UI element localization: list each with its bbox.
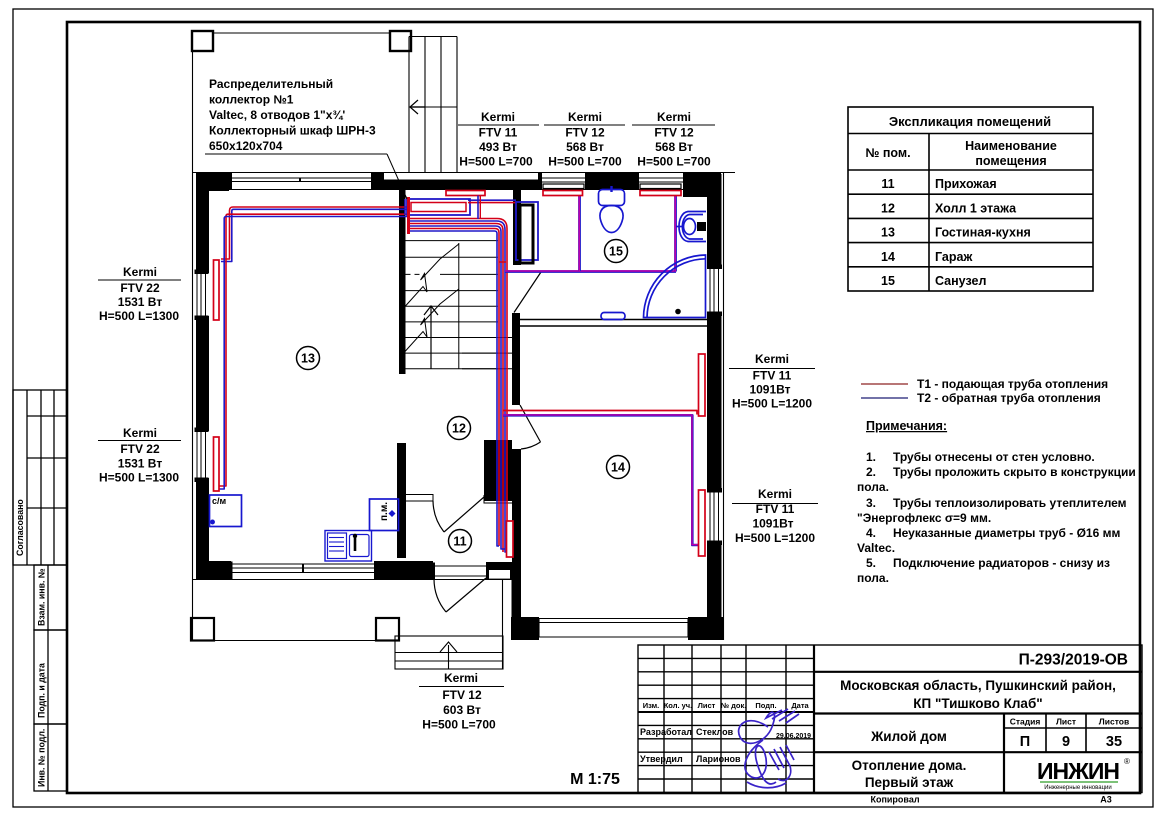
- svg-text:Взам. инв. №: Взам. инв. №: [37, 568, 47, 626]
- svg-text:1091Вт: 1091Вт: [752, 517, 793, 531]
- svg-text:15: 15: [881, 274, 895, 288]
- svg-text:FTV 12: FTV 12: [442, 688, 482, 702]
- svg-text:Наименование: Наименование: [965, 139, 1057, 153]
- svg-text:1531 Вт: 1531 Вт: [118, 457, 163, 471]
- svg-text:14: 14: [611, 461, 625, 475]
- svg-text:H=500 L=700: H=500 L=700: [637, 155, 711, 169]
- svg-text:"Энергофлекс σ=9 мм.: "Энергофлекс σ=9 мм.: [857, 511, 991, 525]
- svg-text:Т1 - подающая труба отопления: Т1 - подающая труба отопления: [917, 377, 1108, 391]
- svg-text:Трубы отнесены от стен условно: Трубы отнесены от стен условно.: [893, 450, 1095, 464]
- svg-text:Дата: Дата: [791, 701, 809, 710]
- svg-text:Стадия: Стадия: [1010, 717, 1041, 727]
- svg-text:603 Вт: 603 Вт: [443, 703, 481, 717]
- svg-text:H=500 L=1200: H=500 L=1200: [735, 531, 815, 545]
- svg-text:FTV 22: FTV 22: [120, 442, 160, 456]
- svg-text:Инженерные инновации: Инженерные инновации: [1044, 785, 1112, 791]
- svg-text:Первый этаж: Первый этаж: [865, 775, 954, 790]
- svg-text:Изм.: Изм.: [643, 701, 660, 710]
- svg-text:Утвердил: Утвердил: [640, 754, 683, 764]
- svg-text:1531 Вт: 1531 Вт: [118, 295, 163, 309]
- svg-text:H=500 L=1200: H=500 L=1200: [732, 397, 812, 411]
- svg-text:Примечания:: Примечания:: [866, 419, 947, 433]
- svg-text:14: 14: [881, 250, 895, 264]
- svg-text:11: 11: [881, 177, 894, 191]
- svg-text:Kermi: Kermi: [755, 352, 789, 366]
- svg-text:П-293/2019-ОВ: П-293/2019-ОВ: [1019, 652, 1128, 669]
- svg-text:13: 13: [301, 352, 315, 366]
- svg-text:Кол. уч.: Кол. уч.: [664, 701, 693, 710]
- svg-text:Kermi: Kermi: [758, 487, 792, 501]
- svg-text:Трубы теплоизолировать утеплит: Трубы теплоизолировать утеплителем: [893, 496, 1127, 510]
- svg-text:Отопление дома.: Отопление дома.: [852, 758, 967, 773]
- svg-text:12: 12: [881, 201, 895, 215]
- svg-text:Подп.: Подп.: [755, 701, 776, 710]
- svg-text:с/м: с/м: [212, 496, 227, 506]
- svg-text:FTV 11: FTV 11: [753, 369, 792, 383]
- svg-text:Листов: Листов: [1099, 717, 1129, 727]
- svg-text:№ док.: № док.: [721, 701, 747, 710]
- svg-text:35: 35: [1106, 734, 1122, 750]
- svg-text:Московская область, Пушкинский: Московская область, Пушкинский район,: [840, 678, 1116, 693]
- svg-text:пола.: пола.: [857, 571, 889, 585]
- svg-text:650х120х704: 650х120х704: [209, 139, 283, 153]
- svg-text:Т2 - обратная труба отопления: Т2 - обратная труба отопления: [917, 391, 1101, 405]
- svg-text:H=500 L=700: H=500 L=700: [548, 155, 622, 169]
- svg-text:FTV 12: FTV 12: [654, 126, 694, 140]
- svg-text:коллектор №1: коллектор №1: [209, 93, 294, 107]
- svg-text:Kermi: Kermi: [481, 110, 515, 124]
- svg-text:Ларионов: Ларионов: [696, 754, 741, 764]
- svg-text:1091Вт: 1091Вт: [749, 383, 790, 397]
- svg-text:5.: 5.: [866, 556, 876, 570]
- svg-text:Холл 1 этажа: Холл 1 этажа: [935, 201, 1017, 215]
- svg-text:4.: 4.: [866, 526, 876, 540]
- svg-text:Лист: Лист: [698, 701, 716, 710]
- svg-text:п.м.: п.м.: [379, 502, 390, 521]
- svg-text:Гараж: Гараж: [935, 250, 972, 264]
- svg-text:15: 15: [609, 245, 623, 259]
- svg-text:ИНЖИН: ИНЖИН: [1037, 758, 1119, 784]
- svg-text:Трубы проложить скрыто в конст: Трубы проложить скрыто в конструкции: [893, 465, 1136, 479]
- svg-text:М 1:75: М 1:75: [570, 771, 620, 788]
- svg-text:H=500 L=1300: H=500 L=1300: [99, 471, 179, 485]
- svg-text:Инв. № подл.: Инв. № подл.: [37, 729, 47, 787]
- svg-text:Санузел: Санузел: [935, 274, 986, 288]
- svg-text:H=500 L=700: H=500 L=700: [459, 155, 533, 169]
- svg-text:Kermi: Kermi: [123, 265, 157, 279]
- svg-text:Разработал: Разработал: [640, 727, 692, 737]
- svg-text:13: 13: [881, 226, 895, 240]
- svg-text:568 Вт: 568 Вт: [566, 140, 604, 154]
- svg-text:2.: 2.: [866, 465, 876, 479]
- svg-text:®: ®: [1124, 757, 1130, 766]
- svg-text:11: 11: [453, 535, 466, 549]
- svg-text:Kermi: Kermi: [123, 426, 157, 440]
- svg-text:Прихожая: Прихожая: [935, 177, 997, 191]
- svg-text:Valtec, 8 отводов 1"х¾': Valtec, 8 отводов 1"х¾': [209, 108, 345, 122]
- svg-text:А3: А3: [1100, 795, 1112, 805]
- svg-text:КП "Тишково Клаб": КП "Тишково Клаб": [913, 696, 1042, 711]
- svg-text:Неуказанные диаметры труб - Ø1: Неуказанные диаметры труб - Ø16 мм: [893, 526, 1120, 540]
- svg-text:Kermi: Kermi: [657, 110, 691, 124]
- svg-text:помещения: помещения: [975, 154, 1046, 168]
- svg-text:Стеклов: Стеклов: [696, 727, 734, 737]
- svg-text:493 Вт: 493 Вт: [479, 140, 517, 154]
- svg-text:Kermi: Kermi: [444, 671, 478, 685]
- svg-text:29.06.2019: 29.06.2019: [776, 733, 811, 740]
- svg-text:Жилой дом: Жилой дом: [870, 729, 947, 744]
- svg-text:12: 12: [452, 422, 466, 436]
- svg-text:Копировал: Копировал: [870, 795, 919, 805]
- svg-text:FTV 11: FTV 11: [756, 502, 795, 516]
- svg-text:FTV 11: FTV 11: [479, 126, 518, 140]
- svg-text:Подп. и дата: Подп. и дата: [37, 663, 47, 718]
- svg-text:H=500 L=1300: H=500 L=1300: [99, 309, 179, 323]
- svg-text:Подключение радиаторов - снизу: Подключение радиаторов - снизу из: [893, 556, 1110, 570]
- svg-text:Гостиная-кухня: Гостиная-кухня: [935, 226, 1031, 240]
- svg-text:1.: 1.: [866, 450, 876, 464]
- svg-text:568 Вт: 568 Вт: [655, 140, 693, 154]
- svg-text:3.: 3.: [866, 496, 876, 510]
- svg-text:Распределительный: Распределительный: [209, 77, 333, 91]
- svg-text:П: П: [1020, 734, 1030, 750]
- svg-text:Kermi: Kermi: [568, 110, 602, 124]
- svg-text:Лист: Лист: [1056, 717, 1076, 727]
- svg-text:№ пом.: № пом.: [865, 146, 910, 160]
- svg-text:FTV 22: FTV 22: [120, 281, 160, 295]
- svg-text:9: 9: [1062, 734, 1070, 750]
- svg-text:Экспликация помещений: Экспликация помещений: [889, 114, 1051, 129]
- svg-text:пола.: пола.: [857, 480, 889, 494]
- svg-text:FTV 12: FTV 12: [565, 126, 605, 140]
- svg-text:Коллекторный шкаф ШРН-3: Коллекторный шкаф ШРН-3: [209, 124, 376, 138]
- svg-text:Согласовано: Согласовано: [15, 499, 25, 556]
- svg-text:H=500 L=700: H=500 L=700: [422, 718, 496, 732]
- svg-text:Valtec.: Valtec.: [857, 541, 895, 555]
